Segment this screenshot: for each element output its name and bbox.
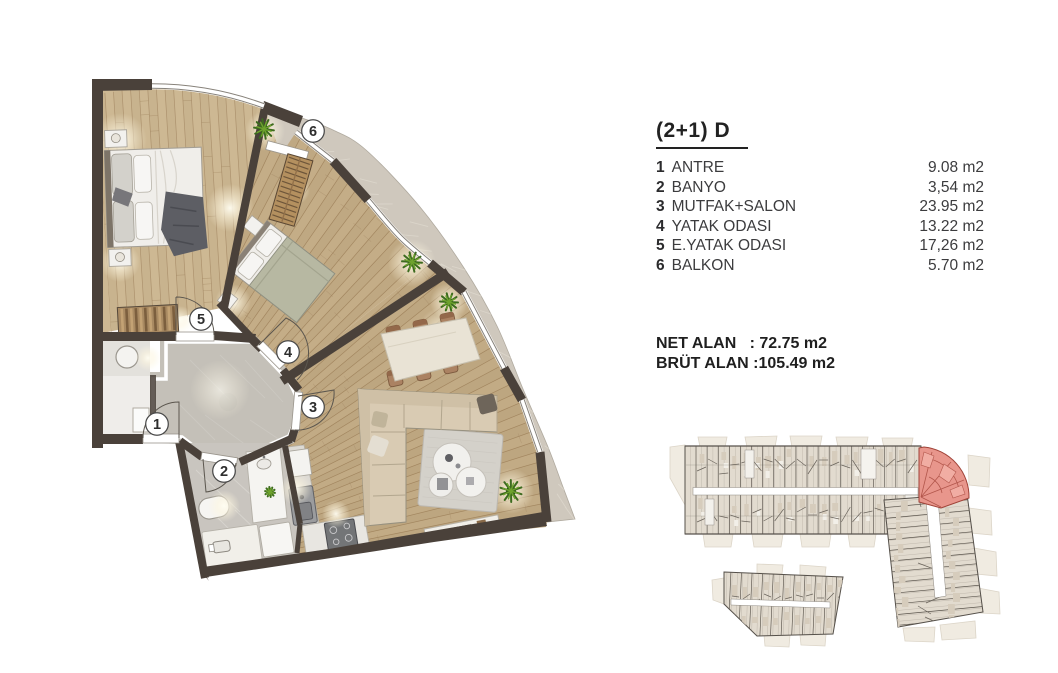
svg-text:2: 2 [220,464,228,480]
svg-text:6: 6 [309,124,317,140]
svg-text:3: 3 [309,400,317,416]
svg-text:1: 1 [153,417,161,433]
svg-text:5: 5 [197,312,205,328]
svg-text:4: 4 [284,345,292,361]
